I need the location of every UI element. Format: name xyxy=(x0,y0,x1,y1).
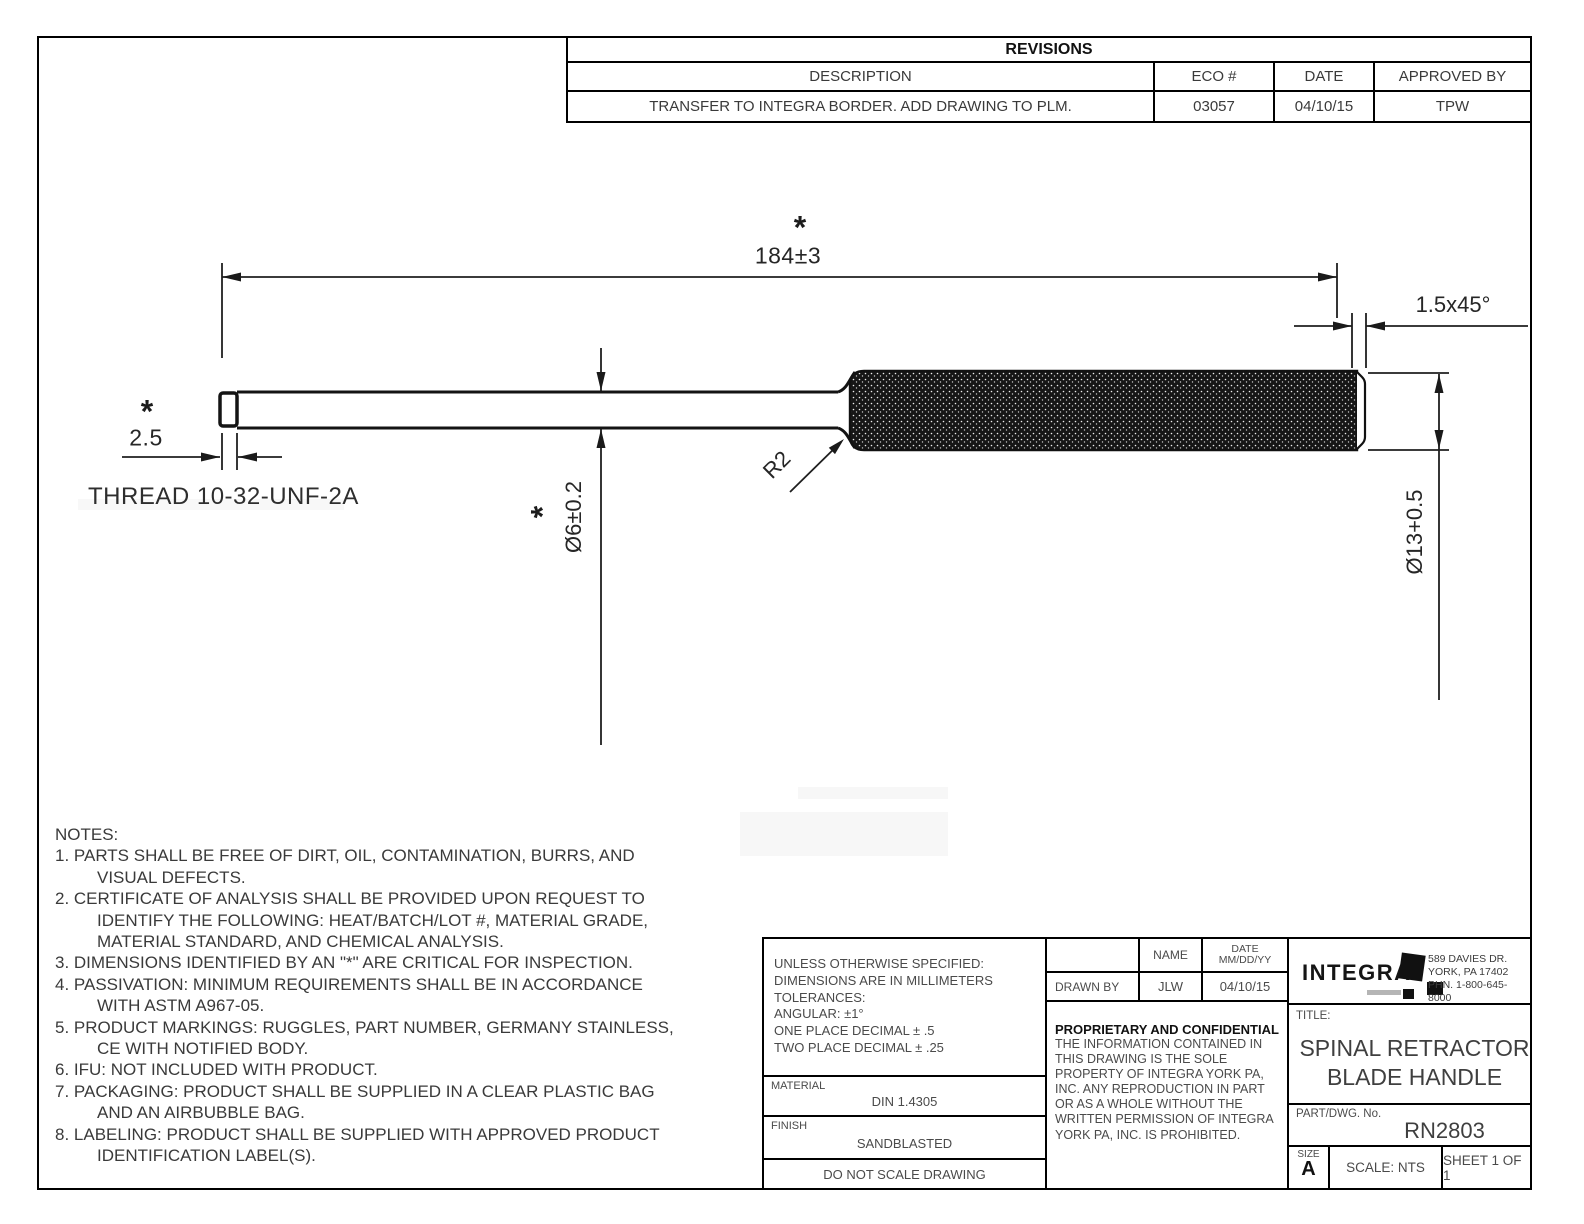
note-line: 2. CERTIFICATE OF ANALYSIS SHALL BE PROV… xyxy=(55,888,715,909)
dim-overall-length: 184±3 xyxy=(755,243,821,270)
note-line: VISUAL DEFECTS. xyxy=(55,867,715,888)
note-line: 4. PASSIVATION: MINIMUM REQUIREMENTS SHA… xyxy=(55,974,715,995)
sheet-cell: SHEET 1 OF 1 xyxy=(1443,1147,1530,1188)
note-line: IDENTIFY THE FOLLOWING: HEAT/BATCH/LOT #… xyxy=(55,910,715,931)
do-not-scale-text: DO NOT SCALE DRAWING xyxy=(823,1167,986,1182)
note-line: 5. PRODUCT MARKINGS: RUGGLES, PART NUMBE… xyxy=(55,1017,715,1038)
note-line: CE WITH NOTIFIED BODY. xyxy=(55,1038,715,1059)
part-number-cell: PART/DWG. No. RN2803 xyxy=(1289,1105,1530,1147)
thread-spec-label: THREAD 10-32-UNF-2A xyxy=(88,483,359,511)
title-block: UNLESS OTHERWISE SPECIFIED: DIMENSIONS A… xyxy=(762,937,1532,1190)
company-address: 589 DAVIES DR. YORK, PA 17402 PHN. 1-800… xyxy=(1428,953,1530,1005)
note-line: 7. PACKAGING: PRODUCT SHALL BE SUPPLIED … xyxy=(55,1081,715,1102)
drawing-sheet: { "revisions": { "title": "REVISIONS", "… xyxy=(0,0,1584,1224)
finish-label: FINISH xyxy=(764,1117,1045,1132)
note-line: WITH ASTM A967-05. xyxy=(55,995,715,1016)
dim-chamfer: 1.5x45° xyxy=(1416,292,1491,318)
dim-thread-length: 2.5 xyxy=(129,425,162,452)
tolerances-cell: UNLESS OTHERWISE SPECIFIED: DIMENSIONS A… xyxy=(764,939,1047,1077)
material-label: MATERIAL xyxy=(764,1077,1045,1092)
drawn-by-name: JLW xyxy=(1140,973,1203,1000)
notes-block: NOTES: 1. PARTS SHALL BE FREE OF DIRT, O… xyxy=(55,824,715,1167)
notes-heading: NOTES: xyxy=(55,824,715,845)
proprietary-title: PROPRIETARY AND CONFIDENTIAL xyxy=(1055,1022,1281,1037)
material-cell: MATERIAL DIN 1.4305 xyxy=(764,1077,1047,1117)
proprietary-cell: PROPRIETARY AND CONFIDENTIAL THE INFORMA… xyxy=(1047,1002,1289,1188)
size-cell: SIZE A xyxy=(1289,1147,1330,1188)
scale-value: SCALE: NTS xyxy=(1346,1160,1425,1175)
drawn-by-label: DRAWN BY xyxy=(1047,973,1140,1000)
sheet-value: SHEET 1 OF 1 xyxy=(1443,1153,1530,1183)
handle-end-chamfer xyxy=(1357,372,1365,449)
note-line: IDENTIFICATION LABEL(S). xyxy=(55,1145,715,1166)
name-date-table: NAME DATE MM/DD/YY DRAWN BY JLW 04/10/15 xyxy=(1047,939,1289,1002)
material-value: DIN 1.4305 xyxy=(764,1094,1045,1109)
note-line: 3. DIMENSIONS IDENTIFIED BY AN "*" ARE C… xyxy=(55,952,715,973)
do-not-scale-cell: DO NOT SCALE DRAWING xyxy=(764,1160,1047,1188)
scale-cell: SCALE: NTS xyxy=(1330,1147,1443,1188)
note-line: 6. IFU: NOT INCLUDED WITH PRODUCT. xyxy=(55,1059,715,1080)
drawing-title: SPINAL RETRACTOR BLADE HANDLE xyxy=(1289,1034,1530,1092)
proprietary-body: THE INFORMATION CONTAINED IN THIS DRAWIN… xyxy=(1055,1037,1281,1143)
knurled-handle xyxy=(850,371,1357,450)
note-line: AND AN AIRBUBBLE BAG. xyxy=(55,1102,715,1123)
size-value: A xyxy=(1289,1158,1328,1181)
dim-shaft-diameter: Ø6±0.2 xyxy=(561,481,587,553)
name-date-corner xyxy=(1047,939,1140,971)
part-outline xyxy=(220,371,1365,450)
title-label: TITLE: xyxy=(1289,1005,1530,1022)
finish-value: SANDBLASTED xyxy=(764,1136,1045,1151)
logo-square-icon xyxy=(1403,989,1414,999)
size-scale-sheet-row: SIZE A SCALE: NTS SHEET 1 OF 1 xyxy=(1289,1147,1530,1188)
finish-cell: FINISH SANDBLASTED xyxy=(764,1117,1047,1160)
logo-cell: INTEGRA. 589 DAVIES DR. YORK, PA 17402 P… xyxy=(1289,939,1530,1005)
part-number: RN2803 xyxy=(1289,1118,1530,1144)
logo-tagline xyxy=(1367,990,1401,995)
critical-star-length: * xyxy=(794,210,806,247)
tolerances-text: UNLESS OTHERWISE SPECIFIED: DIMENSIONS A… xyxy=(764,939,1045,1057)
critical-star-shaft-dia: * xyxy=(525,506,562,518)
title-cell: TITLE: SPINAL RETRACTOR BLADE HANDLE xyxy=(1289,1005,1530,1105)
drawn-by-date: 04/10/15 xyxy=(1203,973,1287,1000)
note-line: MATERIAL STANDARD, AND CHEMICAL ANALYSIS… xyxy=(55,931,715,952)
date-col-header: DATE MM/DD/YY xyxy=(1203,939,1287,971)
note-line: 1. PARTS SHALL BE FREE OF DIRT, OIL, CON… xyxy=(55,845,715,866)
logo-square-icon xyxy=(1398,952,1425,981)
dim-handle-diameter: Ø13+0.5 xyxy=(1402,489,1428,574)
note-line: 8. LABELING: PRODUCT SHALL BE SUPPLIED W… xyxy=(55,1124,715,1145)
name-col-header: NAME xyxy=(1140,939,1203,971)
thread-stub xyxy=(220,393,237,426)
